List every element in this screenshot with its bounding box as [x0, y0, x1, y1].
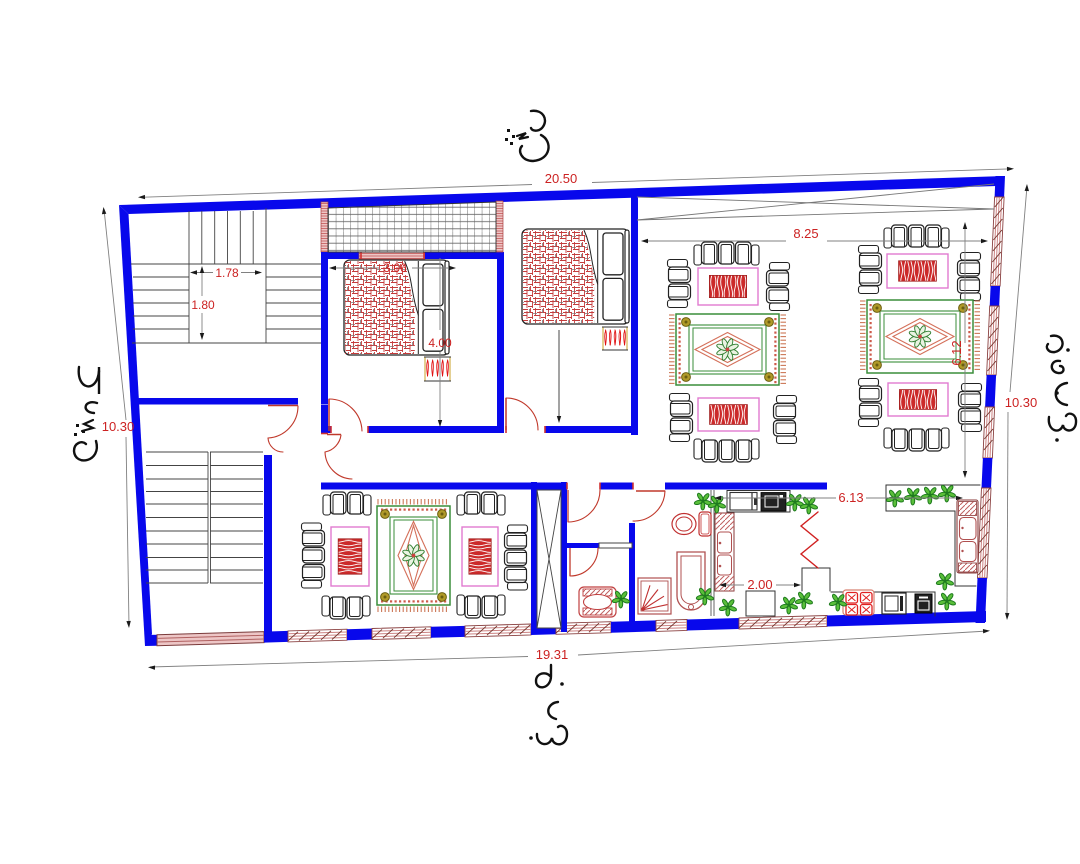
svg-text:1.80: 1.80: [191, 298, 215, 312]
svg-text:3.06: 3.06: [383, 261, 407, 275]
svg-text:6.13: 6.13: [838, 490, 863, 505]
svg-text:2.00: 2.00: [747, 577, 772, 592]
svg-text:6.12: 6.12: [949, 340, 964, 365]
svg-text:1.78: 1.78: [215, 266, 239, 280]
svg-text:10.30: 10.30: [1005, 395, 1038, 410]
svg-text:4.00: 4.00: [428, 336, 452, 350]
svg-text:8.25: 8.25: [793, 226, 818, 241]
svg-text:20.50: 20.50: [545, 171, 578, 186]
svg-text:19.31: 19.31: [536, 647, 569, 662]
svg-text:10.30: 10.30: [102, 419, 135, 434]
